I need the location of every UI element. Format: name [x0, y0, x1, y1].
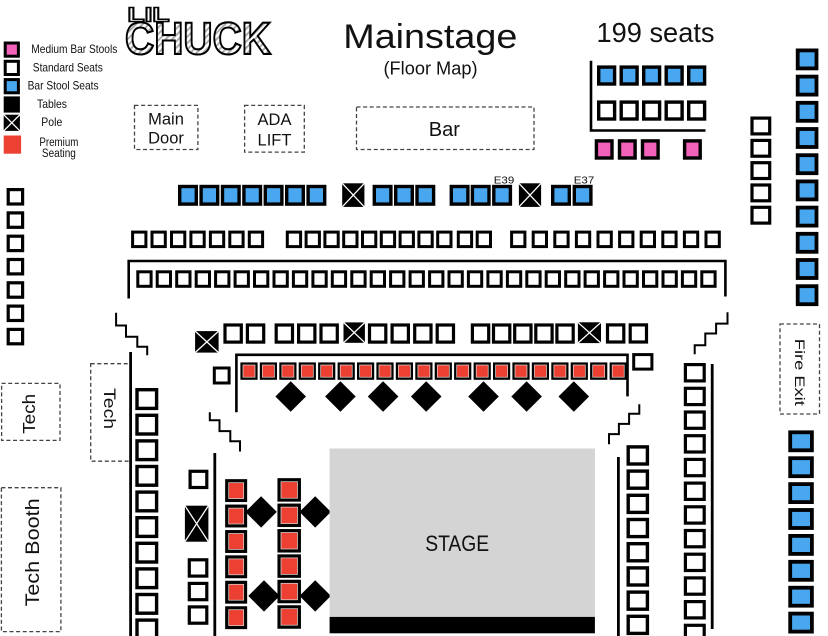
- svg-text:Standard Seats: Standard Seats: [33, 60, 103, 74]
- svg-text:Mainstage: Mainstage: [343, 18, 517, 56]
- svg-text:Main: Main: [148, 111, 184, 129]
- svg-text:Bar Stool Seats: Bar Stool Seats: [28, 79, 99, 93]
- svg-text:CHUCK: CHUCK: [125, 13, 271, 64]
- svg-text:Bar: Bar: [429, 119, 460, 141]
- svg-text:STAGE: STAGE: [425, 531, 489, 556]
- svg-text:Fire Exit: Fire Exit: [792, 339, 808, 406]
- svg-text:Tech: Tech: [100, 388, 119, 429]
- svg-text:199 seats: 199 seats: [597, 17, 715, 48]
- svg-text:Pole: Pole: [41, 115, 62, 129]
- svg-text:E37: E37: [574, 175, 595, 187]
- svg-text:Tech Booth: Tech Booth: [22, 498, 44, 606]
- svg-text:Seating: Seating: [42, 148, 76, 160]
- svg-text:Tables: Tables: [37, 97, 67, 111]
- svg-text:(Floor Map): (Floor Map): [384, 59, 478, 79]
- svg-text:Tech: Tech: [19, 394, 39, 434]
- svg-text:Medium Bar Stools: Medium Bar Stools: [31, 42, 117, 56]
- svg-text:Door: Door: [148, 130, 184, 148]
- svg-text:LIFT: LIFT: [258, 132, 292, 150]
- svg-text:ADA: ADA: [258, 111, 292, 129]
- svg-text:E39: E39: [494, 175, 515, 187]
